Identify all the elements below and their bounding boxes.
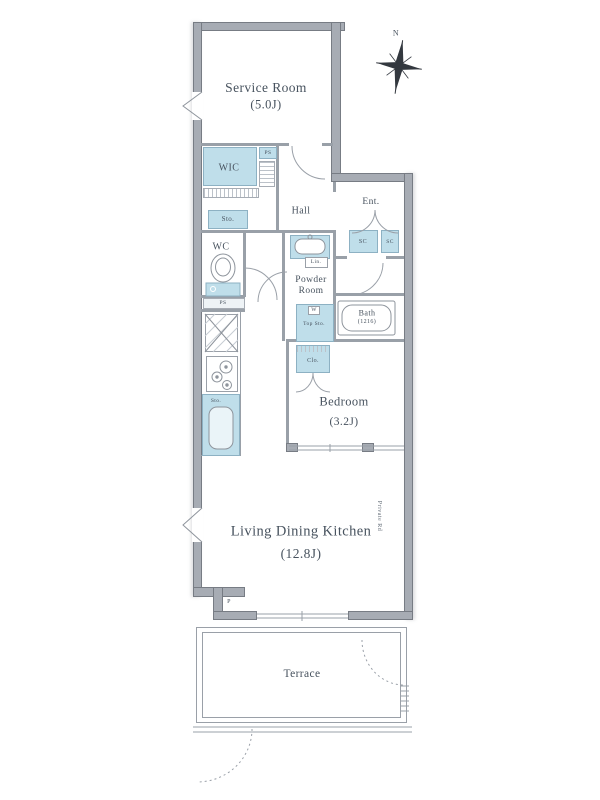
label-storage: Sto. xyxy=(222,215,235,223)
room-label-wc: WC xyxy=(213,242,230,253)
stove-icon xyxy=(212,361,232,390)
label-closet: Clo. xyxy=(307,358,319,364)
label-shoe-closet-left: SC xyxy=(359,239,367,245)
label-linen: Lin. xyxy=(311,259,322,265)
door-arc-entrance-left xyxy=(352,210,375,233)
room-label-ldk: Living Dining Kitchen xyxy=(231,524,372,541)
site-boundary-lines xyxy=(193,727,412,732)
terrace-dotted-arc-top xyxy=(362,640,404,685)
label-kitchen-storage: Sto. xyxy=(211,398,221,404)
room-size-service-room: (5.0J) xyxy=(250,98,281,113)
terrace-ladder-hatch xyxy=(400,686,409,711)
sink-icon xyxy=(209,407,233,449)
label-ps-lower: PS xyxy=(220,300,227,306)
wash-basin-icon xyxy=(295,235,325,254)
terrace-sliding-door xyxy=(257,611,348,621)
plan-linework xyxy=(0,0,600,800)
compass-north-label: N xyxy=(393,29,399,38)
door-arc-powder xyxy=(258,272,287,302)
label-ps-upper: PS xyxy=(265,150,272,156)
terrace-dotted-arc-bottom xyxy=(197,729,252,782)
floor-plan: Service Room (5.0J) N WIC PS Sto. Hall E… xyxy=(0,0,600,800)
bedroom-sliding-divider xyxy=(289,444,404,452)
toilet-icon xyxy=(206,254,240,296)
room-label-wic: WIC xyxy=(219,163,240,174)
label-private-road: Private Rd xyxy=(376,501,382,532)
door-arc-closet-right xyxy=(313,373,330,392)
room-label-service-room: Service Room xyxy=(225,80,307,96)
door-arc-closet-left xyxy=(296,373,313,392)
room-size-bath: (1216) xyxy=(358,319,376,325)
label-top-storage: Top Sto. xyxy=(303,321,325,327)
compass-icon xyxy=(372,37,425,97)
window-icon-service xyxy=(183,92,202,120)
room-label-hall: Hall xyxy=(292,206,311,217)
fridge-hatch-icon xyxy=(205,314,238,352)
room-label-bath: Bath xyxy=(359,309,376,318)
room-size-ldk: (12.8J) xyxy=(281,546,322,562)
room-label-powder-2: Room xyxy=(299,286,324,296)
label-washer: W xyxy=(311,307,317,313)
door-arc-bath xyxy=(348,263,383,295)
room-label-terrace: Terrace xyxy=(283,668,320,680)
room-label-powder-1: Powder xyxy=(295,275,326,285)
door-arc-wc xyxy=(245,268,277,300)
door-arc-entrance-right xyxy=(375,210,398,233)
bathtub-icon xyxy=(338,301,395,335)
window-icon-ldk xyxy=(183,508,202,542)
label-shoe-closet-right: SC xyxy=(386,239,394,245)
door-arc-service xyxy=(292,146,325,179)
label-pillar: P xyxy=(227,599,231,605)
room-size-bedroom: (3.2J) xyxy=(330,416,359,428)
room-label-bedroom: Bedroom xyxy=(319,395,368,410)
room-label-entrance: Ent. xyxy=(362,197,379,207)
